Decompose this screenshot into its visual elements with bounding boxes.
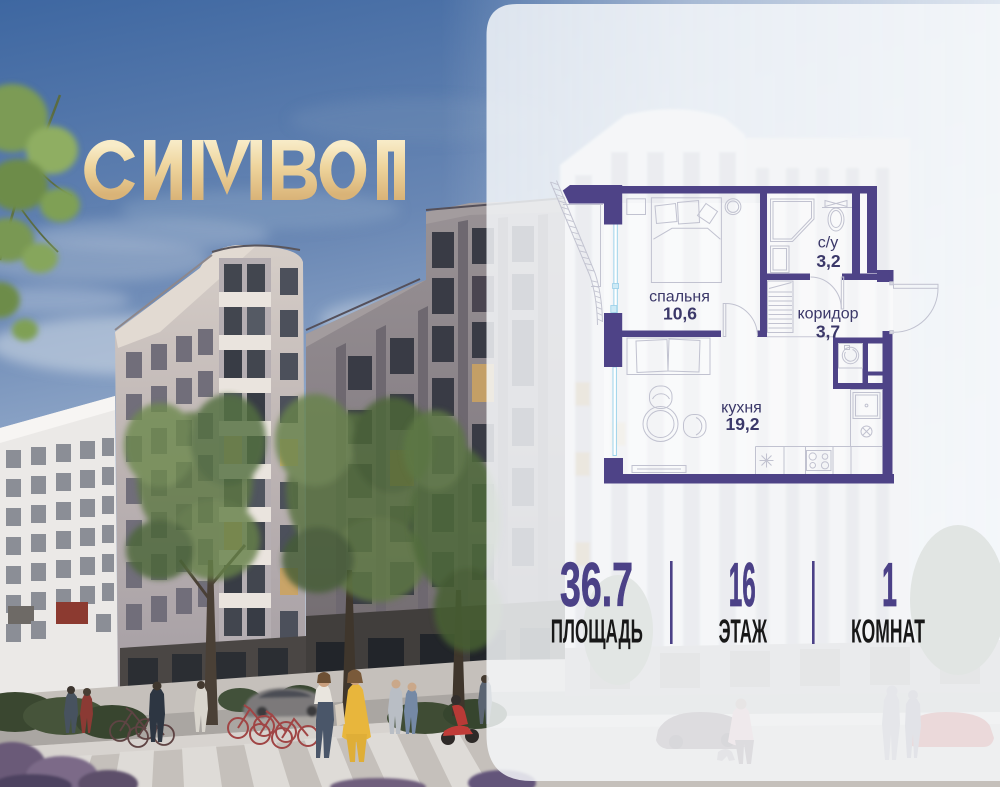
svg-text:36.7: 36.7 [560,551,633,620]
svg-text:1: 1 [882,551,897,620]
svg-text:ПЛОЩАДЬ: ПЛОЩАДЬ [551,612,643,649]
svg-text:ЭТАЖ: ЭТАЖ [719,612,768,649]
svg-text:коридор: коридор [797,306,858,323]
svg-text:с/у: с/у [818,235,838,252]
svg-text:19,2: 19,2 [725,414,759,434]
svg-text:КОМНАТ: КОМНАТ [851,612,925,649]
svg-text:3,2: 3,2 [816,251,841,271]
svg-text:3,7: 3,7 [816,322,840,342]
svg-text:16: 16 [729,551,756,620]
svg-text:10,6: 10,6 [663,304,697,324]
